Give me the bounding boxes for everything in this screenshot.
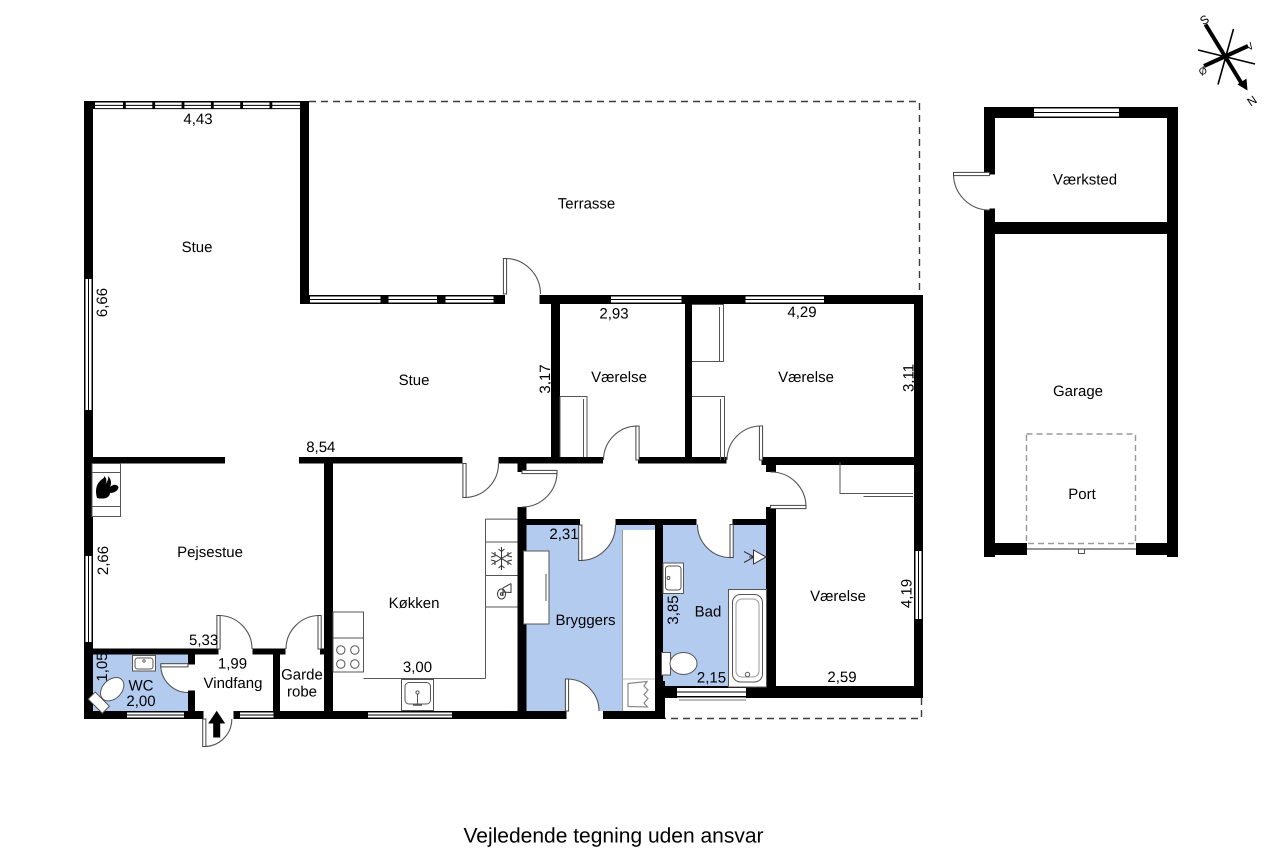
svg-text:3,00: 3,00 (403, 659, 432, 676)
svg-text:Vejledende tegning uden ansvar: Vejledende tegning uden ansvar (463, 825, 763, 848)
svg-text:5,33: 5,33 (189, 632, 218, 649)
svg-text:8,54: 8,54 (306, 439, 335, 456)
svg-text:robe: robe (287, 684, 317, 701)
svg-text:4,29: 4,29 (787, 304, 816, 321)
svg-text:2,93: 2,93 (599, 306, 628, 323)
svg-text:4,19: 4,19 (899, 579, 916, 608)
svg-text:4,43: 4,43 (183, 111, 212, 128)
svg-text:Port: Port (1068, 486, 1096, 503)
svg-text:1,99: 1,99 (218, 656, 247, 673)
svg-text:Vindfang: Vindfang (204, 675, 263, 692)
svg-text:2,31: 2,31 (549, 526, 578, 543)
svg-text:Værelse: Værelse (591, 369, 647, 386)
svg-text:3,85: 3,85 (665, 595, 682, 624)
svg-text:Bad: Bad (695, 604, 722, 621)
svg-text:3,11: 3,11 (901, 364, 918, 392)
svg-text:1,05: 1,05 (94, 652, 111, 681)
svg-text:Værelse: Værelse (778, 369, 834, 386)
svg-text:3,17: 3,17 (537, 364, 554, 393)
svg-text:Værksted: Værksted (1053, 172, 1117, 189)
svg-text:WC: WC (129, 678, 154, 695)
svg-text:Stue: Stue (182, 239, 213, 256)
svg-text:6,66: 6,66 (94, 288, 111, 317)
svg-text:Køkken: Køkken (389, 595, 440, 612)
svg-text:Garage: Garage (1053, 383, 1103, 400)
svg-text:2,00: 2,00 (126, 693, 155, 710)
svg-text:Bryggers: Bryggers (555, 612, 615, 629)
svg-text:Garde: Garde (281, 667, 323, 684)
svg-text:Stue: Stue (399, 372, 430, 389)
svg-text:2,66: 2,66 (95, 546, 112, 575)
svg-text:Pejsestue: Pejsestue (177, 544, 243, 561)
svg-text:Terrasse: Terrasse (558, 196, 616, 213)
svg-text:Værelse: Værelse (810, 588, 866, 605)
svg-text:2,15: 2,15 (697, 670, 726, 687)
svg-text:2,59: 2,59 (827, 669, 856, 686)
